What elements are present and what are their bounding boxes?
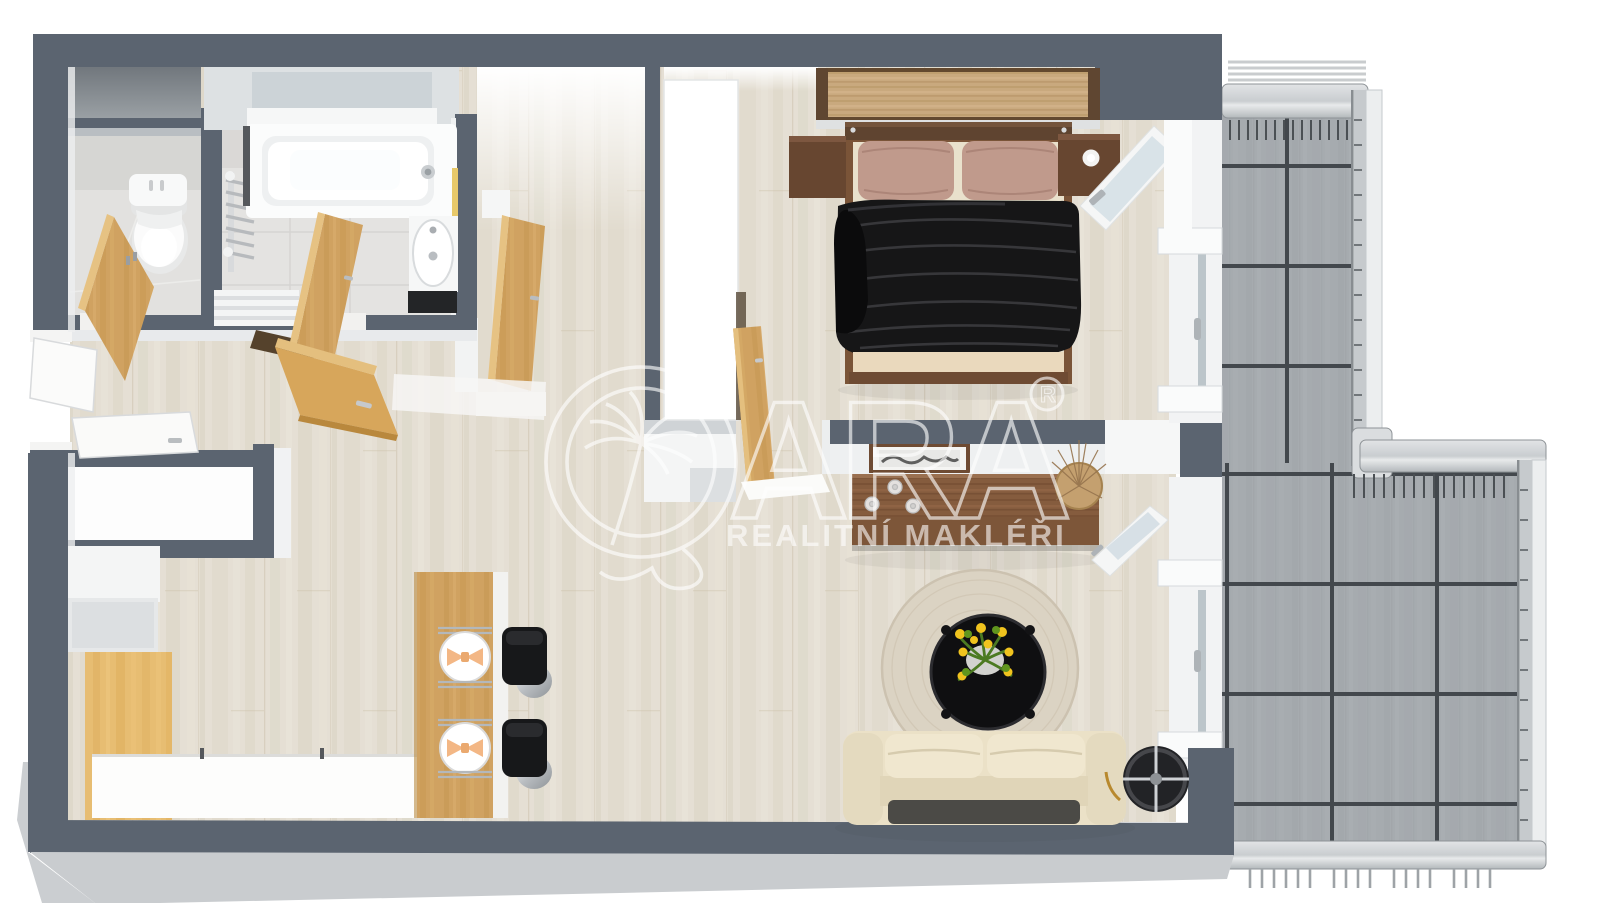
svg-text:R: R <box>1040 382 1056 407</box>
svg-text:REALITNÍ MAKLÉŘI: REALITNÍ MAKLÉŘI <box>726 517 1067 553</box>
